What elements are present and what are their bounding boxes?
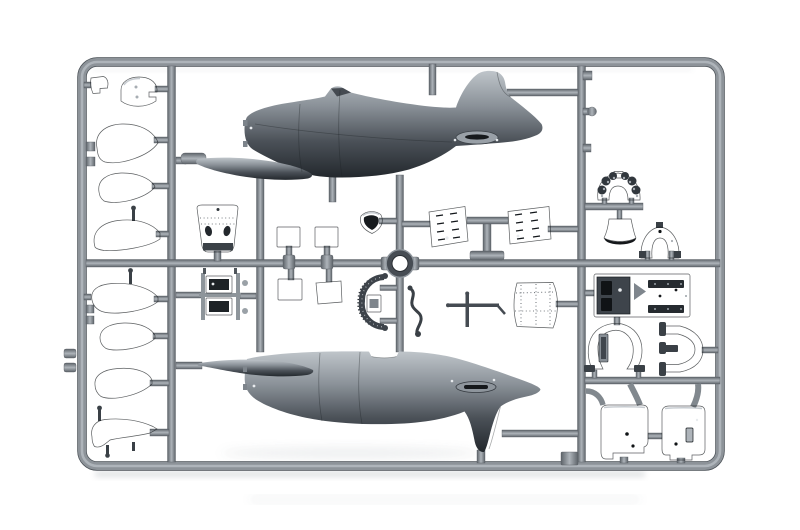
nose-step-3: [243, 366, 247, 372]
gate-louver-right: [548, 226, 578, 232]
nub-inner-1: [86, 142, 95, 151]
cross-rod-vertical: [466, 293, 470, 327]
louver-right-dot: [517, 235, 520, 238]
former-hole: [658, 230, 661, 233]
cross-ball-1: [446, 303, 450, 307]
cowling-right-hole: [674, 442, 677, 445]
boot-pin-bottom-ball: [105, 453, 110, 458]
gate-drum: [556, 301, 578, 307]
nose-step-1: [243, 120, 248, 126]
t-sprue-stem: [483, 224, 491, 254]
arc-knob-top: [382, 273, 388, 279]
gate-radiator-left: [176, 292, 202, 298]
runner-centre-upper: [396, 175, 404, 252]
t-sprue-top: [467, 217, 508, 224]
runner-horizontal-mid-right: [413, 260, 720, 268]
louver-left-dot: [445, 236, 448, 239]
mount-ring-foot-left: [584, 365, 595, 372]
arc-actuator-face: [370, 299, 379, 308]
floor-hole-2: [675, 289, 678, 292]
tab-bottom-corner: [561, 452, 578, 465]
nose-step-4: [243, 384, 247, 390]
stabilizer-slot-upper: [465, 134, 489, 139]
gate-strut-fairing: [156, 231, 169, 237]
shadow-under-fuselage: [220, 447, 480, 459]
radiator-rail-mid: [199, 293, 241, 297]
rung-arc-bottom: [380, 318, 397, 324]
gate-boot: [150, 429, 169, 436]
mount-bracket-cap-3: [659, 362, 666, 376]
nub-outer-1: [64, 349, 76, 358]
mount-bracket-cap-2: [659, 342, 666, 354]
runner-right-lower-bar: [585, 377, 720, 384]
nub-outer-2: [64, 363, 76, 372]
t-sprue-base: [470, 251, 504, 260]
nub-inner-3: [86, 305, 94, 313]
exhaust-slot: [464, 385, 488, 389]
shadow-table: [250, 497, 640, 502]
radiator-pin-2: [234, 268, 237, 274]
radiator-core-2-face: [209, 301, 229, 312]
nose-step-2: [243, 141, 248, 147]
knob-right-bar: [588, 107, 597, 116]
floor-recess-top: [648, 280, 684, 288]
junction-block-1: [283, 255, 295, 269]
floor-slot-2: [601, 298, 612, 311]
foot-former-2: [669, 251, 674, 260]
gate-nose-cone: [214, 251, 221, 261]
foot-cowl-1: [620, 457, 628, 463]
gate-belly: [329, 176, 336, 202]
floor-recess-bottom: [648, 305, 684, 313]
runner-horizontal-mid-left: [86, 260, 387, 268]
gate-spat-3-left: [84, 294, 91, 300]
pin-mark-1: [135, 86, 138, 89]
nub-inner-2: [86, 157, 95, 166]
spat-3-pin: [129, 272, 132, 284]
gate-bracket: [702, 347, 718, 353]
runner-panel-bar: [585, 203, 643, 210]
cowling-right-slot: [686, 428, 693, 442]
photo-stage: [0, 0, 800, 530]
rod-ball-top: [408, 286, 413, 291]
cowling-left-hole-2: [631, 444, 634, 447]
floor-hole-1: [659, 295, 662, 298]
nose-cone-base-band: [203, 243, 233, 251]
cross-ball-2: [465, 292, 469, 296]
rung-arc-top: [380, 285, 397, 291]
radiator-pin-1: [203, 268, 206, 274]
sprue-photo: [0, 0, 800, 530]
gate-spat-5: [150, 380, 169, 386]
spat-3-pin-ball: [128, 268, 133, 273]
gate-between-cowls: [648, 433, 662, 439]
former-foot-right: [674, 251, 681, 258]
junction-block-2: [321, 255, 333, 269]
tab-right-bar-1: [583, 71, 592, 80]
gate-clip: [84, 82, 91, 88]
mount-bracket-cap-1: [659, 322, 666, 336]
gate-louver-left: [402, 221, 430, 227]
pin-mark-2: [136, 96, 139, 99]
gate-top-frame: [429, 64, 436, 95]
shadow-bottom-frame: [95, 471, 645, 477]
fairing-mast: [132, 209, 135, 221]
boot-pin-bottom-2: [132, 442, 135, 451]
runner-top-right-bar: [507, 89, 578, 96]
cowling-right-dot: [696, 419, 698, 421]
floor-slot-1: [601, 281, 612, 295]
gate-floor: [585, 290, 594, 296]
mount-ring-strap-slot: [601, 337, 606, 359]
floor-dot-light: [618, 288, 622, 292]
stem-headrest: [617, 210, 622, 219]
gate-spat-3: [154, 296, 168, 302]
shadow-top-frame: [92, 67, 692, 71]
boot-pin-top-ball: [97, 406, 102, 411]
radiator-knob-1: [242, 280, 248, 286]
mount-ring-foot-right: [634, 365, 645, 372]
tab-right-bar-2: [583, 144, 591, 152]
cowling-left-hole-1: [625, 432, 629, 436]
runner-tail-bar: [502, 430, 578, 437]
radiator-knob-2: [242, 308, 248, 314]
cross-rod-horizontal: [447, 304, 499, 308]
arc-knob-bottom: [382, 325, 388, 331]
foot-cowl-2: [677, 458, 685, 463]
gate-radiator-right: [240, 293, 256, 299]
nose-cone-top-hole: [217, 208, 220, 211]
rod-ball-bottom: [415, 331, 421, 337]
boot-pin-bottom-1: [106, 445, 109, 454]
foot-instrument-1: [602, 198, 607, 204]
radiator-dot: [212, 283, 215, 286]
former-dot: [671, 240, 673, 242]
boot-pin-top: [98, 410, 101, 421]
former-foot-left: [639, 251, 646, 258]
fairing-mast-ball: [131, 206, 136, 211]
nub-inner-4: [86, 316, 94, 324]
foot-instrument-2: [629, 198, 634, 204]
